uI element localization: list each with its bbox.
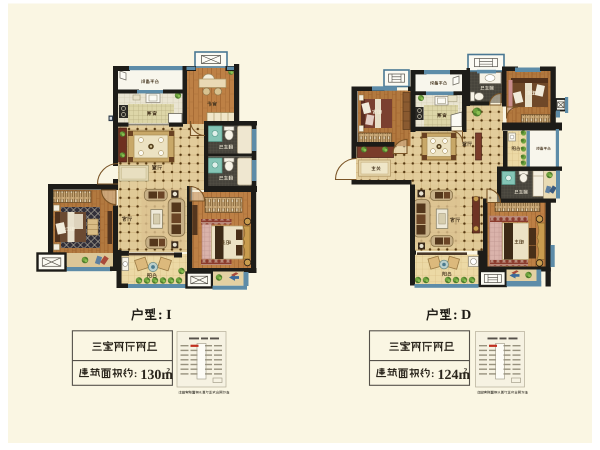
svg-text:2: 2 — [166, 366, 170, 375]
svg-text::: : — [431, 369, 435, 380]
svg-text:: D: : D — [453, 308, 471, 323]
svg-text::: : — [134, 369, 138, 380]
svg-text:: I: : I — [158, 308, 172, 323]
svg-text:2: 2 — [464, 366, 468, 375]
